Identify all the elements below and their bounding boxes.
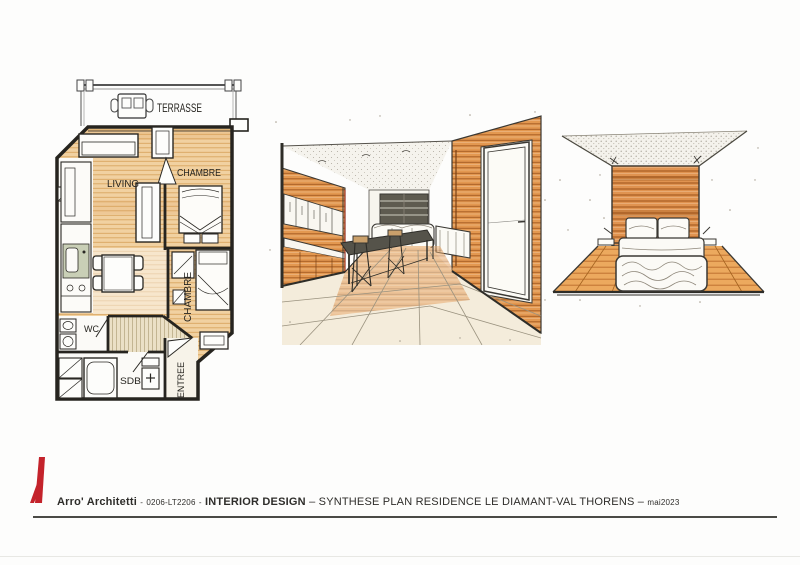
- sketch-kitchen-wall: [282, 168, 345, 288]
- sofa: [79, 134, 138, 157]
- project-code: 0206-LT2206: [146, 498, 195, 507]
- separator-dash: –: [309, 496, 315, 508]
- terrace-table-and-chairs: [111, 94, 153, 118]
- scanned-architecture-sheet: TERRASSE: [0, 0, 800, 565]
- title-block-text: Arro' Architetti - 0206-LT2206 - INTERIO…: [57, 496, 679, 508]
- separator: -: [140, 498, 143, 507]
- tv-partition: [136, 183, 160, 242]
- bed-double: [179, 186, 222, 243]
- bedroom-sketch: [550, 103, 765, 328]
- sheet-title: SYNTHESE PLAN RESIDENCE LE DIAMANT-VAL T…: [319, 496, 635, 508]
- separator-dash: –: [638, 496, 644, 508]
- plan-label-wc: WC: [84, 324, 99, 335]
- floor-plan: TERRASSE: [50, 75, 260, 420]
- plan-label-chambre-top: CHAMBRE: [177, 167, 221, 179]
- separator: -: [199, 498, 202, 507]
- architect-logo-icon: [30, 457, 50, 503]
- scan-edge: [0, 556, 800, 557]
- living-room-sketch: [265, 105, 550, 345]
- firm-name: Arro' Architetti: [57, 496, 137, 508]
- bedroom-ceiling: [562, 131, 747, 166]
- plan-label-chambre-bottom: CHAMBRE: [182, 272, 194, 322]
- kitchen-units: [61, 162, 91, 312]
- date-label: mai2023: [647, 498, 679, 507]
- plan-label-living: LIVING: [107, 178, 139, 190]
- title-block-rule: [33, 516, 777, 518]
- plan-label-entree: ENTREE: [176, 362, 187, 398]
- discipline-label: INTERIOR DESIGN: [205, 496, 306, 508]
- plan-label-terrasse: TERRASSE: [157, 101, 202, 115]
- plan-label-sdb: SDB: [120, 376, 141, 387]
